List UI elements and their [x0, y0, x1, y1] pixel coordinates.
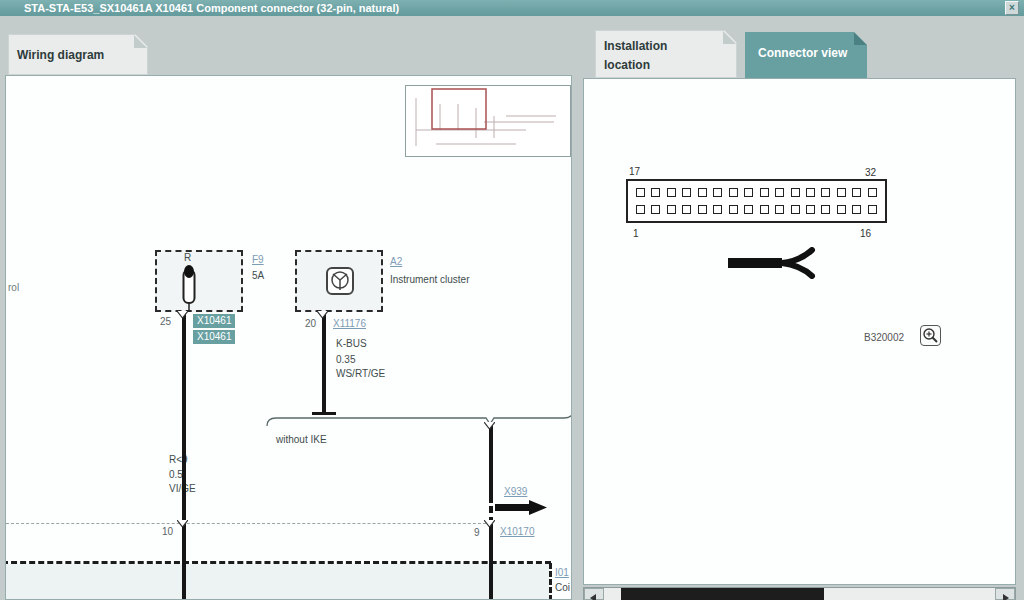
- fuse-pin-number: 25: [160, 316, 171, 327]
- pin-marker-icon: [317, 311, 328, 318]
- pin-label-top-left: 17: [629, 166, 640, 177]
- pin-square: [775, 205, 784, 214]
- pin-square: [821, 188, 830, 197]
- diagram-overview-minimap[interactable]: [405, 85, 571, 157]
- instrument-cluster-caption: Instrument cluster: [390, 274, 469, 285]
- pin-square: [821, 205, 830, 214]
- pin-square: [667, 205, 676, 214]
- branch-condition-label: without IKE: [276, 434, 327, 445]
- scroll-right-arrow-icon: [996, 593, 1014, 600]
- pin-square: [636, 205, 645, 214]
- bottom-component-border-top: [5, 561, 551, 564]
- minimap-thumbnail-icon: [406, 86, 568, 154]
- connector-tag: X10461: [193, 314, 235, 328]
- kbus-wire-end-bar: [312, 412, 336, 415]
- wire-size-label: 0.35: [336, 354, 355, 365]
- fuse-component-box[interactable]: R: [155, 250, 243, 312]
- figure-id-label: B320002: [864, 332, 904, 343]
- pin-marker-icon: [177, 520, 188, 527]
- tab-wiring-diagram[interactable]: Wiring diagram: [8, 34, 148, 75]
- magnifier-plus-icon: [921, 326, 940, 345]
- rail-right-pin: 9: [474, 527, 480, 538]
- connector-rail-line: [6, 523, 491, 524]
- fuse-link[interactable]: F9: [252, 254, 264, 265]
- fuse-rating-label: 5A: [252, 270, 264, 281]
- clipped-wire-label: rol: [8, 282, 19, 293]
- wiring-diagram-panel: rol R F9 5A A2 Instrument cluster 25 X10…: [5, 75, 572, 600]
- fuse-symbol-icon: [179, 263, 199, 311]
- pin-square: [791, 188, 800, 197]
- cluster-connector-link[interactable]: X11176: [333, 318, 366, 329]
- pin-label-top-right: 32: [865, 167, 876, 178]
- pin-square: [698, 188, 707, 197]
- pin-marker-icon: [484, 520, 495, 527]
- rail-connector-link[interactable]: X10170: [500, 526, 534, 537]
- branch-wire: [489, 426, 493, 503]
- connector-pin-grid: [626, 179, 887, 223]
- pin-square: [760, 205, 769, 214]
- close-icon[interactable]: ×: [1005, 1, 1019, 15]
- pin-square: [682, 188, 691, 197]
- pin-square: [651, 205, 660, 214]
- bottom-component-caption: Coi: [555, 582, 570, 593]
- pin-square: [837, 205, 846, 214]
- bottom-component-border-right: [549, 563, 552, 600]
- rail-left-pin: 10: [162, 526, 173, 537]
- pin-square: [636, 188, 645, 197]
- pin-square: [744, 205, 753, 214]
- tab-fold-decoration: [854, 32, 867, 45]
- pin-square: [682, 205, 691, 214]
- tab-connector-view[interactable]: Connector view: [745, 32, 867, 78]
- pin-square: [760, 188, 769, 197]
- pin-square: [729, 188, 738, 197]
- title-bar: STA-STA-E53_SX10461A X10461 Component co…: [0, 0, 1024, 16]
- tab-label: Installation location: [604, 37, 709, 75]
- pin-square: [868, 188, 877, 197]
- horizontal-scrollbar[interactable]: [583, 587, 1016, 600]
- pin-square: [729, 205, 738, 214]
- pin-square: [806, 205, 815, 214]
- offpage-arrow-icon: [495, 500, 553, 515]
- pin-label-bottom-right: 16: [860, 228, 871, 239]
- scroll-left-arrow-icon: [585, 593, 603, 600]
- instrument-cluster-box[interactable]: [295, 250, 383, 312]
- branch-wire-lower: [489, 524, 493, 600]
- branch-brace-icon: [264, 412, 572, 428]
- pin-square: [806, 188, 815, 197]
- tab-installation-location[interactable]: Installation location: [595, 30, 737, 78]
- bottom-component-fill: [6, 564, 549, 600]
- connector-tag: X10461: [193, 330, 235, 344]
- offpage-connector-link[interactable]: X939: [504, 486, 527, 497]
- instrument-cluster-link[interactable]: A2: [390, 256, 402, 267]
- scroll-right-button[interactable]: [995, 588, 1015, 600]
- pin-square: [852, 188, 861, 197]
- window-title: STA-STA-E53_SX10461A X10461 Component co…: [24, 2, 399, 14]
- pin-square: [791, 205, 800, 214]
- pin-square: [651, 188, 660, 197]
- tab-fold-decoration: [723, 31, 736, 44]
- tab-label: Connector view: [758, 46, 847, 60]
- pin-marker-icon: [484, 422, 495, 429]
- pin-square: [837, 188, 846, 197]
- pin-marker-icon: [177, 311, 188, 318]
- wire-color-label: WS/RT/GE: [336, 368, 385, 379]
- pin-square: [868, 205, 877, 214]
- zoom-in-button[interactable]: [920, 325, 941, 346]
- pin-square: [775, 188, 784, 197]
- cable-plug-icon: [728, 247, 820, 279]
- pin-label-bottom-left: 1: [633, 228, 639, 239]
- pin-square: [852, 205, 861, 214]
- branch-wire-dash: [489, 506, 493, 513]
- pin-square: [713, 205, 722, 214]
- tab-fold-decoration: [134, 35, 147, 48]
- fuse-wire: [182, 313, 186, 600]
- tab-label: Wiring diagram: [17, 48, 104, 62]
- wire-size-label: 0.5: [169, 469, 183, 480]
- pin-square: [713, 188, 722, 197]
- pin-square: [744, 188, 753, 197]
- pin-square: [698, 205, 707, 214]
- wire-name-label: K-BUS: [336, 338, 367, 349]
- cluster-pin-number: 20: [305, 318, 316, 329]
- fuse-code-label: R: [184, 252, 191, 263]
- kbus-wire: [322, 313, 326, 413]
- instrument-cluster-gauge-icon: [326, 267, 354, 295]
- bottom-component-link[interactable]: I01: [555, 567, 569, 578]
- scrollbar-thumb[interactable]: [621, 588, 824, 600]
- scroll-left-button[interactable]: [584, 588, 604, 600]
- connector-view-panel: 17 32 1 16 B320002: [583, 78, 1016, 585]
- pin-square: [667, 188, 676, 197]
